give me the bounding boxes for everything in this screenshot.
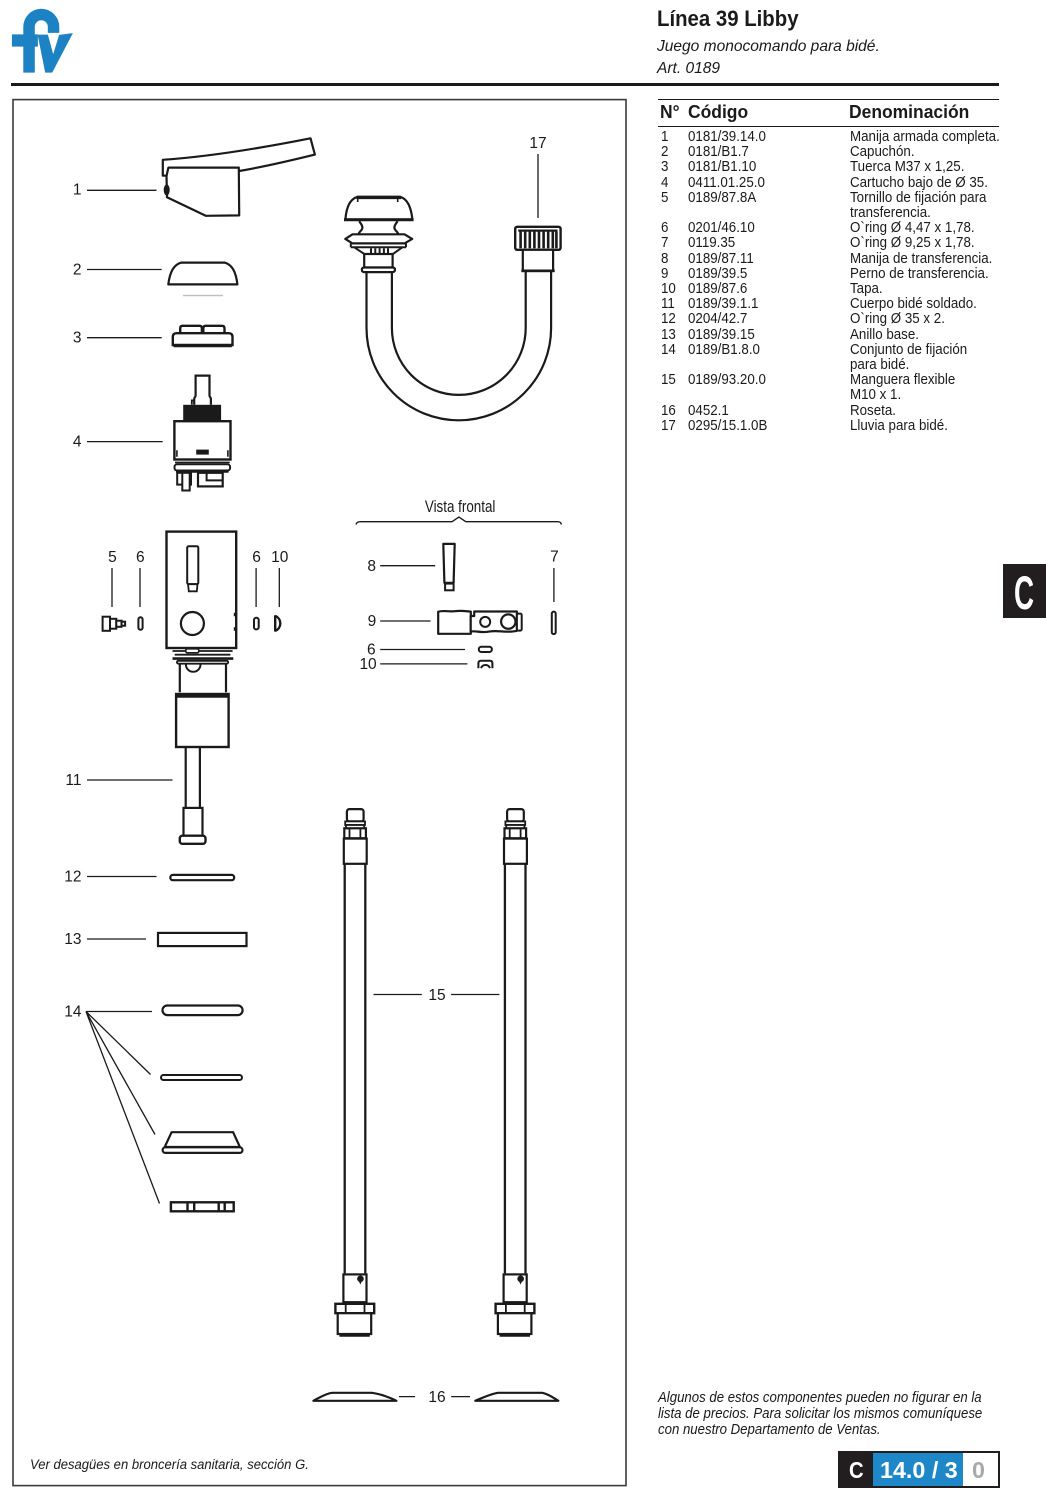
svg-text:8: 8 [367, 558, 376, 575]
svg-text:5: 5 [108, 549, 117, 566]
svg-text:14: 14 [64, 1003, 82, 1020]
svg-text:17: 17 [529, 135, 546, 152]
svg-text:12: 12 [64, 868, 81, 885]
svg-text:1: 1 [73, 182, 82, 199]
svg-text:10: 10 [359, 656, 377, 673]
svg-text:7: 7 [550, 549, 559, 566]
svg-text:6: 6 [136, 549, 145, 566]
svg-text:2: 2 [73, 261, 82, 278]
svg-text:4: 4 [73, 433, 82, 450]
svg-text:9: 9 [368, 613, 377, 630]
svg-text:6: 6 [252, 549, 261, 566]
svg-text:10: 10 [271, 549, 289, 566]
svg-text:13: 13 [64, 931, 81, 948]
svg-text:3: 3 [73, 329, 82, 346]
svg-text:16: 16 [428, 1389, 445, 1406]
svg-text:11: 11 [65, 772, 81, 789]
svg-text:15: 15 [428, 987, 445, 1004]
svg-text:Vista frontal: Vista frontal [425, 498, 496, 516]
